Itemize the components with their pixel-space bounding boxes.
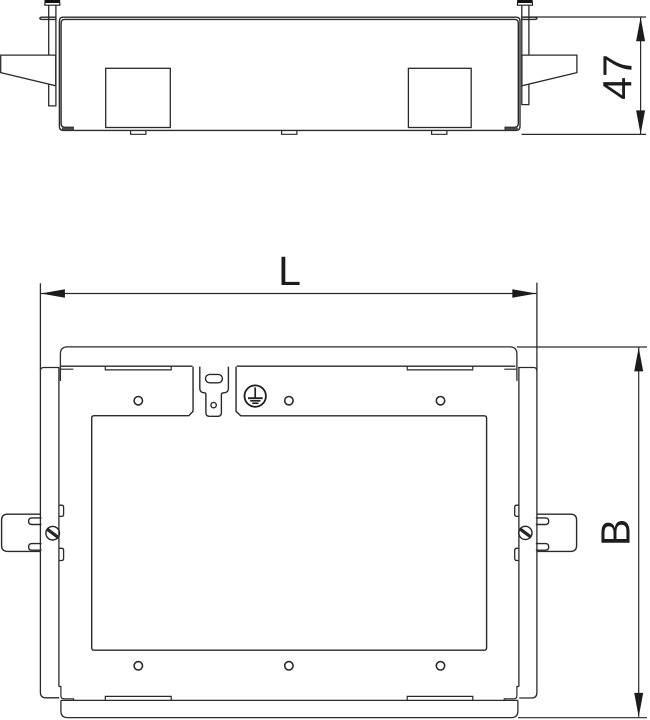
svg-text:47: 47 [595, 54, 641, 100]
svg-text:L: L [278, 248, 301, 294]
svg-text:B: B [593, 519, 639, 546]
